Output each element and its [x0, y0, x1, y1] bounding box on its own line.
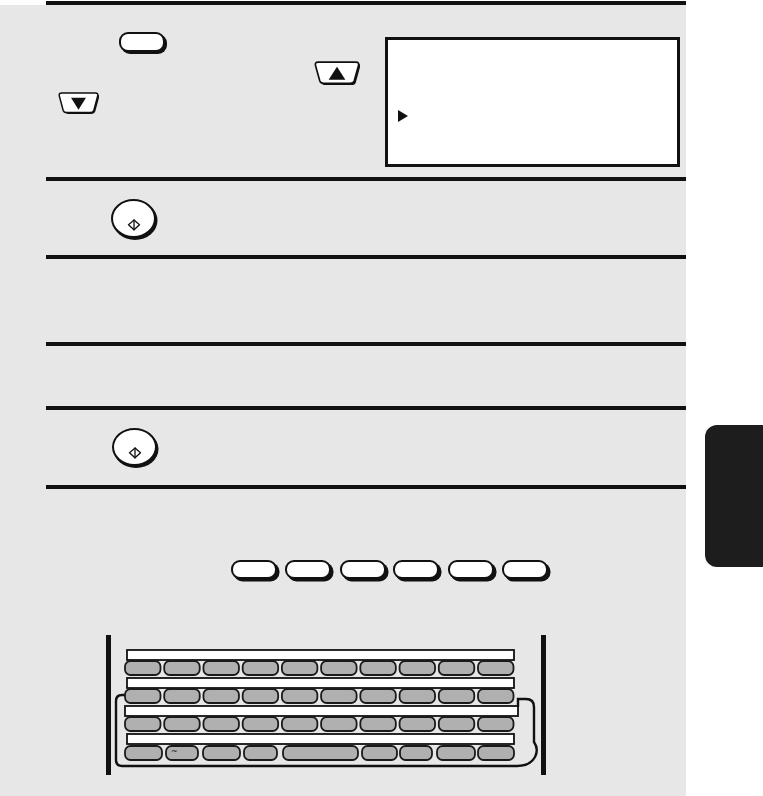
keyboard-key — [439, 689, 475, 703]
keyboard-key — [203, 661, 239, 675]
function-key-button — [448, 560, 494, 579]
keyboard-key — [164, 661, 200, 675]
keyboard-key — [439, 717, 475, 731]
tilde-key-glyph: ~ — [171, 747, 178, 756]
section-divider — [46, 255, 686, 259]
keyboard-key — [125, 746, 162, 760]
keyboard-key — [203, 717, 239, 731]
keyboard-illustration: ~ — [100, 628, 560, 788]
keyboard-key — [282, 717, 318, 731]
function-key-button — [393, 560, 439, 579]
keyboard-key — [362, 746, 397, 760]
keyboard-key — [164, 689, 200, 703]
keyboard-key — [400, 717, 436, 731]
display-cursor-icon — [398, 110, 408, 122]
keyboard-key — [243, 717, 279, 731]
start-key-icon — [112, 428, 157, 466]
keyboard-key — [478, 717, 514, 731]
keyboard-key — [360, 689, 396, 703]
keyboard-key — [243, 689, 279, 703]
keyboard-key — [400, 746, 432, 760]
keyboard-key — [360, 661, 396, 675]
blank-rounded-key-icon — [119, 32, 165, 52]
down-arrow-key-icon — [58, 92, 99, 118]
keyboard-strip — [127, 734, 514, 744]
keyboard-key — [203, 746, 240, 760]
keyboard-key — [283, 746, 358, 760]
keyboard-strip — [127, 678, 514, 688]
function-key-button — [502, 560, 548, 579]
keyboard-key — [125, 689, 161, 703]
keyboard-key — [400, 661, 436, 675]
keyboard-key — [164, 717, 200, 731]
section-divider — [46, 406, 686, 410]
lcd-display — [385, 37, 680, 167]
keyboard-strip — [125, 706, 518, 716]
keyboard-key — [244, 746, 277, 760]
keyboard-key — [400, 689, 436, 703]
keyboard-key — [321, 717, 357, 731]
start-key-icon — [111, 199, 156, 238]
keyboard-key — [478, 746, 514, 760]
keyboard-right-bar — [541, 635, 546, 775]
keyboard-left-bar — [106, 635, 111, 775]
keyboard-key — [321, 661, 357, 675]
function-key-button — [231, 560, 277, 579]
section-divider — [46, 177, 686, 181]
section-divider — [46, 485, 686, 489]
keyboard-key — [437, 746, 475, 760]
keyboard-strip — [127, 650, 514, 660]
start-diamond-icon — [127, 216, 140, 235]
keyboard-key — [282, 689, 318, 703]
keyboard-key — [478, 689, 514, 703]
keyboard-key — [125, 717, 161, 731]
section-divider — [46, 342, 686, 346]
function-key-button — [285, 560, 331, 579]
keyboard-key — [203, 689, 239, 703]
section-divider — [46, 1, 686, 5]
keyboard-key — [282, 661, 318, 675]
chapter-edge-tab — [705, 425, 763, 567]
manual-page: ~ — [0, 0, 763, 796]
up-arrow-key-icon — [314, 61, 360, 89]
keyboard-key — [439, 661, 475, 675]
start-diamond-icon — [128, 444, 141, 463]
keyboard-key — [360, 717, 396, 731]
keyboard-key — [243, 661, 279, 675]
keyboard-key — [478, 661, 514, 675]
keyboard-key — [321, 689, 357, 703]
function-key-button — [340, 560, 386, 579]
keyboard-key — [125, 661, 161, 675]
